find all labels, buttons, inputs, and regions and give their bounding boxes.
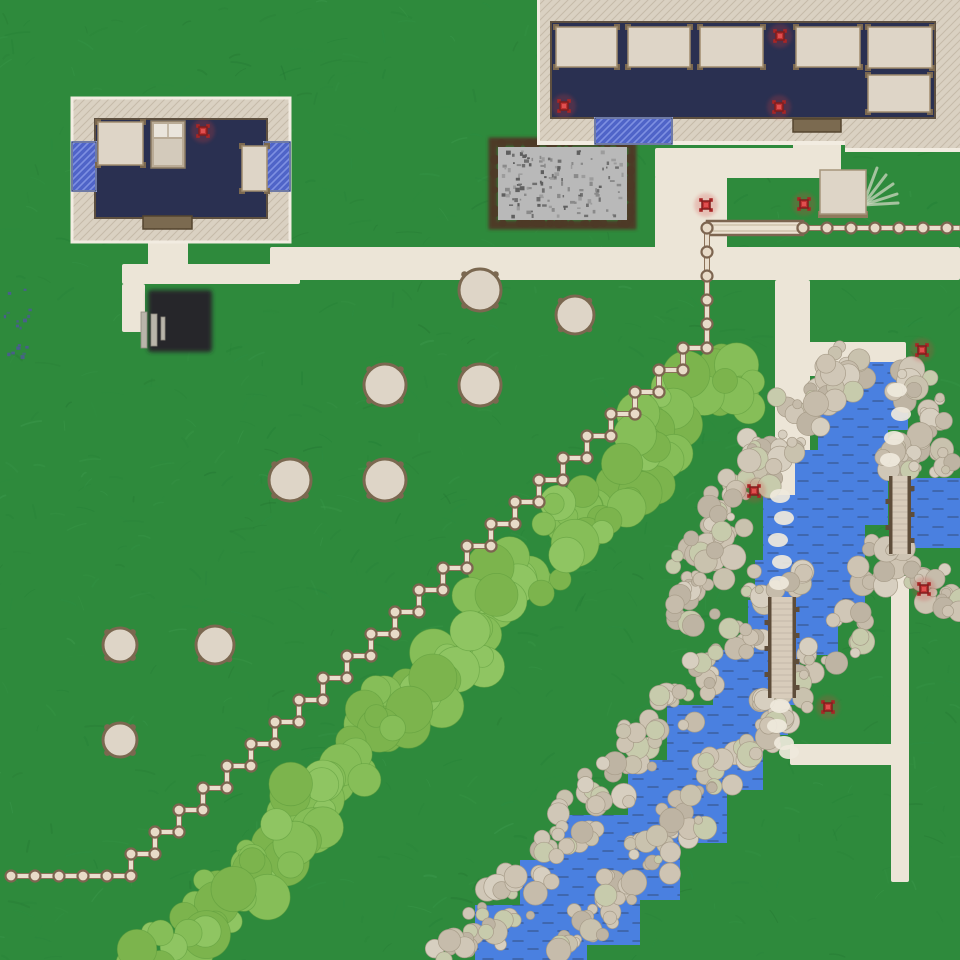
bridge-notch [796,633,800,638]
fence-post [654,365,665,376]
table[interactable] [95,119,146,168]
bridge-upper[interactable] [886,476,915,554]
trail-patch [769,576,789,590]
fence-post [558,475,569,486]
straw-fan-icon [863,203,898,205]
trail-patch [767,719,787,733]
fence-post [582,453,593,464]
bridge-rail [908,476,912,554]
bridge-rail [768,597,772,698]
fence-post [462,541,473,552]
bridge-rail [793,597,797,698]
fence-post [342,673,353,684]
red-flag-marker[interactable] [816,695,840,719]
fence-post [222,783,233,794]
fence-post [846,223,857,234]
fence-post [414,607,425,618]
trail-patch [880,453,900,467]
fence-post [270,739,281,750]
window[interactable] [72,142,96,191]
round-table[interactable] [364,459,406,501]
fence-post [510,519,521,530]
table-top [628,27,690,67]
table[interactable] [793,24,863,70]
leaning-plank[interactable] [161,317,165,340]
fence-post [702,271,713,282]
game-map-stage [0,0,960,960]
round-table[interactable] [459,269,501,311]
round-table[interactable] [103,628,137,662]
table[interactable] [553,24,620,70]
fence-post [318,695,329,706]
round-table[interactable] [103,723,137,757]
fence-post [462,563,473,574]
red-flag-marker[interactable] [552,94,576,118]
fence-post [198,783,209,794]
fence-post [438,585,449,596]
table[interactable] [625,24,693,70]
fence-post [678,343,689,354]
fence-post [894,223,905,234]
fence-post [702,247,713,258]
fence-post [294,695,305,706]
round-table[interactable] [459,364,501,406]
table-top [459,364,501,406]
fence-post [534,475,545,486]
fence-post [198,805,209,816]
fence-post [174,827,185,838]
table-top [868,27,932,68]
bridge-notch [911,512,915,517]
fence-post [606,409,617,420]
red-flag-marker[interactable] [694,193,718,217]
fence-post [294,717,305,728]
door[interactable] [143,216,192,229]
fence-post [150,849,161,860]
table-top [103,723,137,757]
fence-post [150,827,161,838]
pad-surface [148,290,212,352]
red-flag-marker[interactable] [792,192,816,216]
bridge-notch [765,672,769,677]
fence-post [366,629,377,640]
table-top [868,75,930,112]
table-top [796,27,860,67]
path-main-horizontal [270,247,960,280]
bridge-notch [765,620,769,625]
fence-post [6,871,17,882]
table-top [700,27,763,67]
fence-post [342,651,353,662]
path-yard-vertical [655,176,727,250]
fence-post [870,223,881,234]
table-top [196,626,234,664]
table-top [242,146,267,191]
bridge-lower[interactable] [765,597,800,698]
red-flag-marker[interactable] [767,95,791,119]
window[interactable] [595,118,672,144]
fence-post [582,431,593,442]
table-top [556,296,594,334]
table-top [269,459,311,501]
fence-post [918,223,929,234]
table[interactable] [697,24,766,70]
bridge-notch [911,538,915,543]
wall-edge [537,0,540,145]
black-storage-pad[interactable] [141,290,212,352]
fence-post [246,761,257,772]
outdoor-square-table[interactable] [818,170,868,218]
bed-blanket [154,139,182,165]
path-south-horizontal [790,744,895,765]
stone-rubble-pit[interactable] [490,139,635,228]
fence-post [54,871,65,882]
fence-post [30,871,41,882]
fence-post [438,563,449,574]
path-yard-horizontal [655,148,841,178]
trail-patch [887,383,907,397]
table[interactable] [865,72,933,115]
fence-post [102,871,113,882]
bridge-notch [796,607,800,612]
trail-patch [891,407,911,421]
table-top [820,170,866,214]
bridge-deck [768,597,796,698]
table-top [364,459,406,501]
table-top [459,269,501,311]
fence-post [702,343,713,354]
trail-patch [779,745,799,759]
fence-post [486,541,497,552]
table-top [556,27,617,67]
fence-post [630,409,641,420]
fence-post [174,805,185,816]
red-flag-marker[interactable] [910,338,934,362]
leaning-plank[interactable] [141,312,147,348]
fence-post [702,319,713,330]
table[interactable] [239,143,270,194]
fence-post [366,651,377,662]
building-big-hall [537,0,960,152]
fence-post [798,223,809,234]
bridge-notch [886,499,890,504]
fence-post [390,629,401,640]
table[interactable] [865,24,935,71]
leaning-plank[interactable] [151,314,157,346]
table-top [98,122,143,165]
trail-patch [768,533,788,547]
red-flag-marker[interactable] [768,24,792,48]
fence-post [702,223,713,234]
bed[interactable] [151,121,185,168]
bridge-notch [796,659,800,664]
fence-post [246,739,257,750]
bridge-notch [765,646,769,651]
trail-patch [774,511,794,525]
wall-edge [845,148,960,152]
wall-edge [537,141,845,145]
fence-post [390,607,401,618]
fence-post [270,717,281,728]
fence-post [318,673,329,684]
fence-post [678,365,689,376]
fence-post [702,295,713,306]
bridge-notch [911,486,915,491]
fence-post [414,585,425,596]
fence-post [510,497,521,508]
round-table[interactable] [364,364,406,406]
fence-post [558,453,569,464]
trail-patch [772,555,792,569]
trail-patch [884,431,904,445]
building-left-house [72,98,290,242]
round-table[interactable] [556,296,594,334]
fence-post [654,387,665,398]
fence-post [126,871,137,882]
table-top [364,364,406,406]
fence-post [486,519,497,530]
window[interactable] [264,142,290,191]
door[interactable] [793,119,841,132]
bridge-notch [796,685,800,690]
red-flag-marker[interactable] [742,479,766,503]
fence-post [222,761,233,772]
top-down-map [0,0,960,960]
trail-patch [770,489,790,503]
fence-post [630,387,641,398]
trail-patch [770,699,790,713]
bridge-notch [886,525,890,530]
fence-gate[interactable] [707,221,803,235]
red-flag-marker[interactable] [912,577,936,601]
red-flag-marker[interactable] [191,119,215,143]
path-south-vertical [891,576,909,882]
fence-post [942,223,953,234]
round-table[interactable] [269,459,311,501]
fence-post [126,849,137,860]
fence-post [606,431,617,442]
fence-post [78,871,89,882]
round-table[interactable] [196,626,234,664]
bridge-rail [889,476,893,554]
table-top [103,628,137,662]
fence-post [822,223,833,234]
fence-post [534,497,545,508]
